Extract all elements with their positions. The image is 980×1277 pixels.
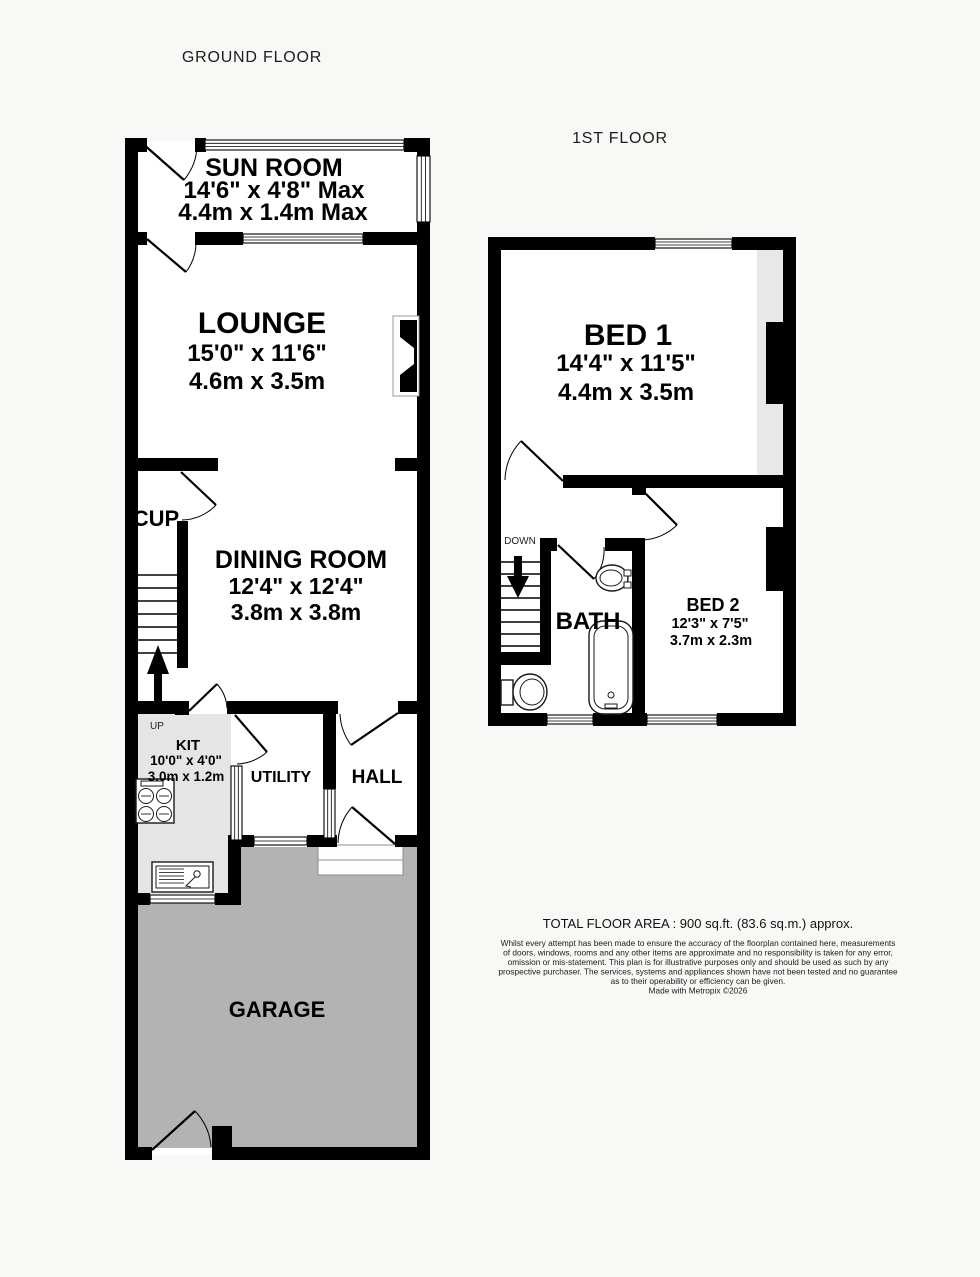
window: [324, 789, 335, 838]
window: [417, 156, 430, 222]
hall-label: HALL: [352, 767, 403, 788]
dining-room-label: DINING ROOM: [215, 546, 387, 574]
disclaimer-line: as to their operability or efficiency ca…: [611, 976, 786, 986]
window: [231, 766, 242, 840]
kitchen-label: KIT: [176, 737, 200, 754]
first-floor-plan: [488, 237, 796, 726]
chimney-bed1: [766, 322, 783, 404]
window: [150, 895, 215, 903]
window: [655, 239, 732, 248]
total-floor-area: TOTAL FLOOR AREA : 900 sq.ft. (83.6 sq.m…: [543, 916, 853, 931]
disclaimer-line: prospective purchaser. The services, sys…: [498, 967, 898, 977]
up-label: UP: [150, 721, 164, 732]
footer: TOTAL FLOOR AREA : 900 sq.ft. (83.6 sq.m…: [498, 916, 898, 996]
window: [547, 715, 593, 724]
floorplan-page: GROUND FLOOR 1ST FLOOR SUN ROOM 14'6" x …: [0, 0, 980, 1277]
dining-room-dims-metric: 3.8m x 3.8m: [231, 599, 361, 625]
disclaimer-line: of doors, windows, rooms and any other i…: [503, 948, 893, 958]
utility-label: UTILITY: [251, 769, 312, 786]
bed2-label: BED 2: [686, 595, 739, 615]
disclaimer-line: Whilst every attempt has been made to en…: [501, 938, 896, 948]
bed2-dims-metric: 3.7m x 2.3m: [670, 633, 752, 649]
bed1-dims-imperial: 14'4" x 11'5": [556, 350, 696, 377]
dining-room-dims-imperial: 12'4" x 12'4": [228, 573, 363, 599]
window: [243, 234, 363, 243]
stove-icon: [136, 779, 174, 823]
steps: [318, 845, 403, 875]
kitchen-dims-metric: 3.0m x 1.2m: [148, 769, 225, 784]
window: [254, 837, 307, 845]
sink-icon: [152, 862, 213, 892]
ground-floor-title: GROUND FLOOR: [182, 49, 322, 66]
toilet-icon: [501, 674, 547, 710]
window: [647, 715, 717, 724]
bed1-label: BED 1: [584, 319, 672, 352]
kitchen-dims-imperial: 10'0" x 4'0": [150, 753, 222, 768]
credit-line: Made with Metropix ©2026: [649, 986, 748, 996]
bed2-dims-imperial: 12'3" x 7'5": [671, 616, 748, 632]
lounge-label: LOUNGE: [198, 307, 326, 340]
garage-label: GARAGE: [229, 997, 326, 1022]
down-label: DOWN: [504, 536, 536, 547]
bath-label: BATH: [556, 608, 621, 635]
lounge-dims-imperial: 15'0" x 11'6": [187, 340, 327, 367]
window: [205, 140, 404, 150]
cup-label: CUP: [133, 506, 179, 531]
bed1-dims-metric: 4.4m x 3.5m: [558, 379, 694, 406]
sun-room-dims-metric: 4.4m x 1.4m Max: [178, 199, 368, 226]
disclaimer-line: omission or mis-statement. This plan is …: [508, 957, 890, 967]
fireplace: [393, 316, 419, 396]
lounge-dims-metric: 4.6m x 3.5m: [189, 368, 325, 395]
chimney-bed2: [766, 527, 783, 591]
floorplan-canvas: GROUND FLOOR 1ST FLOOR SUN ROOM 14'6" x …: [0, 0, 980, 1277]
first-floor-title: 1ST FLOOR: [572, 130, 668, 147]
